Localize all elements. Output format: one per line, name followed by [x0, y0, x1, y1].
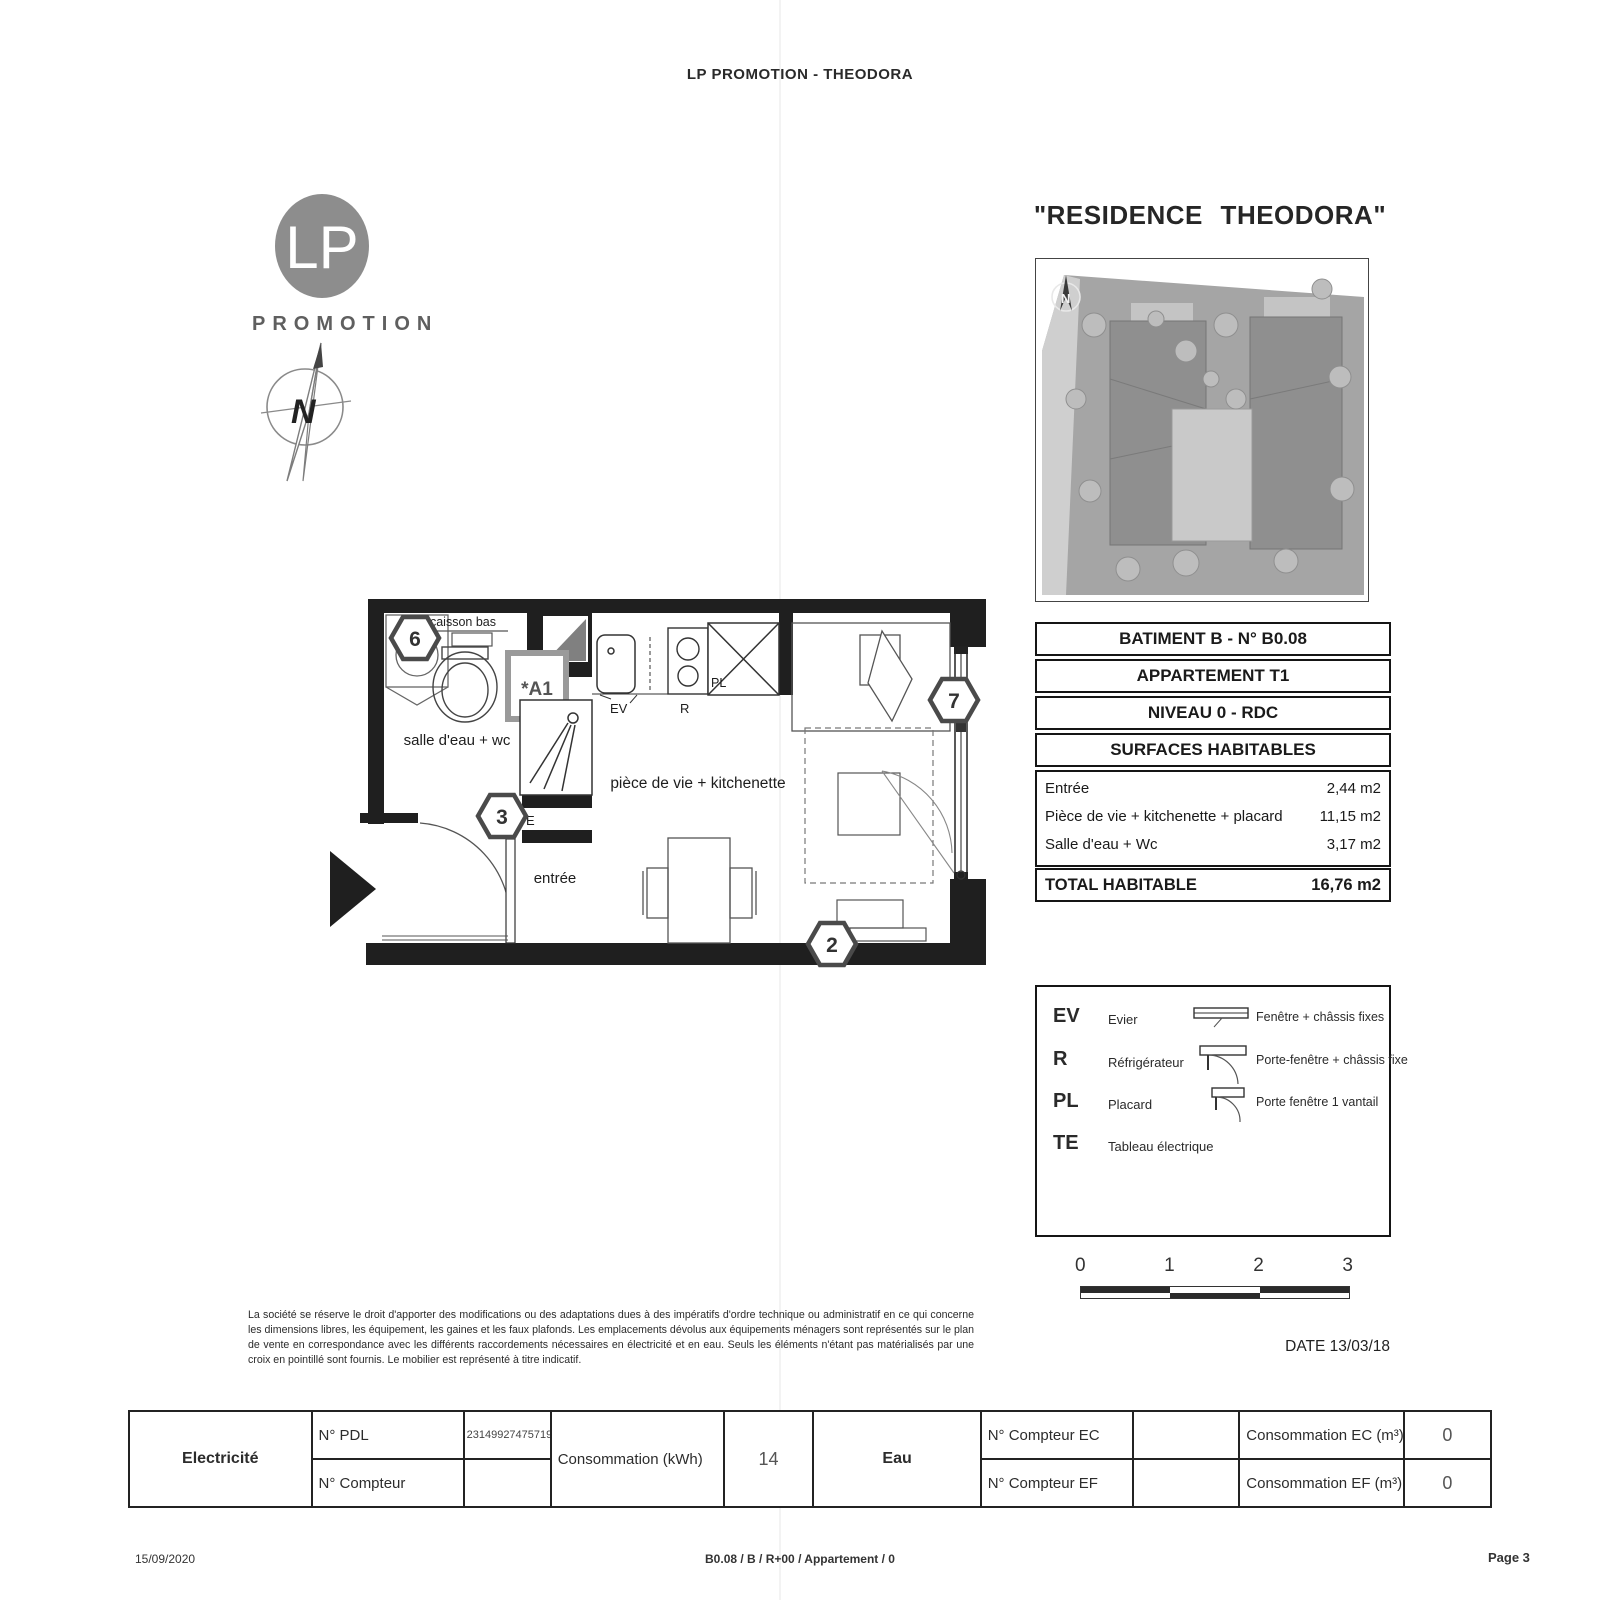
- door-window-symbol-icon: [1198, 1044, 1254, 1086]
- compteur-value: [464, 1459, 551, 1507]
- label-pl: PL: [711, 676, 726, 690]
- conso-ef-value: 0: [1404, 1459, 1491, 1507]
- compteur-label: N° Compteur: [312, 1459, 464, 1507]
- legend-label-porte-1-vantail: Porte fenêtre 1 vantail: [1256, 1095, 1378, 1109]
- surfaces-list: Entrée 2,44 m2 Pièce de vie + kitchenett…: [1035, 770, 1391, 867]
- hexagon-marker-7: 7: [930, 679, 978, 721]
- pdl-label: N° PDL: [312, 1411, 464, 1459]
- site-plan-graphic: N: [1036, 259, 1366, 599]
- total-value: 16,76 m2: [1311, 876, 1381, 895]
- a1-badge-label: *A1: [521, 679, 553, 700]
- legend-label-tableau: Tableau électrique: [1108, 1139, 1214, 1154]
- info-row-batiment: BATIMENT B - N° B0.08: [1035, 622, 1391, 656]
- conso-kwh-value: 14: [724, 1411, 814, 1507]
- room-label-piece-vie: pièce de vie + kitchenette: [610, 775, 785, 792]
- hexagon-marker-6: 6: [391, 617, 439, 659]
- apartment-info-table: BATIMENT B - N° B0.08 APPARTEMENT T1 NIV…: [1035, 622, 1391, 867]
- surface-label: Pièce de vie + kitchenette + placard: [1045, 803, 1283, 831]
- legend-label-fenetre: Fenêtre + châssis fixes: [1256, 1010, 1384, 1024]
- surface-label: Entrée: [1045, 775, 1089, 803]
- scale-tick: 0: [1075, 1255, 1086, 1277]
- scale-tick: 1: [1164, 1255, 1175, 1277]
- residence-title: "RESIDENCE THEODORA": [1020, 200, 1400, 231]
- bed: [792, 623, 950, 731]
- legend-code-ev: EV: [1053, 1005, 1080, 1028]
- surface-value: 3,17 m2: [1327, 831, 1381, 859]
- surface-value: 2,44 m2: [1327, 775, 1381, 803]
- legend-label-placard: Placard: [1108, 1097, 1152, 1112]
- document-header: LP PROMOTION - THEODORA: [0, 66, 1600, 83]
- info-row-niveau: NIVEAU 0 - RDC: [1035, 696, 1391, 730]
- surface-value: 11,15 m2: [1320, 803, 1381, 831]
- dining-table: [643, 838, 756, 943]
- compteur-ef-label: N° Compteur EF: [981, 1459, 1133, 1507]
- meters-table: Electricité N° PDL 23149927475719 Consom…: [128, 1410, 1492, 1508]
- site-plan-image: N: [1035, 258, 1369, 602]
- single-door-symbol-icon: [1208, 1086, 1254, 1126]
- legend-label-refrigerateur: Réfrigérateur: [1108, 1055, 1184, 1070]
- legend-code-te: TE: [1053, 1132, 1079, 1155]
- pdl-value: 23149927475719: [464, 1411, 551, 1459]
- svg-text:6: 6: [409, 628, 421, 651]
- hexagon-marker-3: 3: [478, 795, 526, 837]
- electricite-label: Electricité: [129, 1411, 312, 1507]
- room-label-salle-deau: salle d'eau + wc: [404, 732, 511, 749]
- window-symbol-icon: [1192, 1004, 1252, 1028]
- legend-code-pl: PL: [1053, 1090, 1079, 1113]
- surface-row: Pièce de vie + kitchenette + placard 11,…: [1045, 803, 1381, 831]
- info-row-surfaces: SURFACES HABITABLES: [1035, 733, 1391, 767]
- conso-ec-label: Consommation EC (m³): [1239, 1411, 1404, 1459]
- entrance-arrow-icon: [330, 851, 376, 927]
- total-habitable-row: TOTAL HABITABLE 16,76 m2: [1035, 868, 1391, 902]
- toilet: [433, 647, 497, 722]
- scale-tick: 3: [1342, 1255, 1353, 1277]
- floor-plan: caisson bas *A1: [330, 583, 992, 983]
- north-compass-icon: N: [243, 335, 368, 485]
- caisson-bas-label: caisson bas: [430, 615, 496, 629]
- svg-text:7: 7: [948, 690, 960, 713]
- info-row-appartement: APPARTEMENT T1: [1035, 659, 1391, 693]
- window-door-arc: [882, 771, 954, 873]
- scale-bar-bottom-row: [1081, 1293, 1349, 1299]
- scale-tick: 2: [1253, 1255, 1264, 1277]
- conso-kwh-label: Consommation (kWh): [551, 1411, 724, 1507]
- lp-logo-icon: LP: [252, 192, 392, 304]
- kitchen-sink: [592, 635, 678, 703]
- compass-letter: N: [291, 393, 317, 431]
- cooktop: [668, 628, 708, 694]
- svg-text:2: 2: [826, 934, 838, 957]
- surface-row: Entrée 2,44 m2: [1045, 775, 1381, 803]
- room-label-entree: entrée: [534, 870, 577, 887]
- label-ev: EV: [610, 701, 628, 716]
- svg-text:3: 3: [496, 806, 508, 829]
- conso-ec-value: 0: [1404, 1411, 1491, 1459]
- footer-reference: B0.08 / B / R+00 / Appartement / 0: [0, 1552, 1600, 1566]
- total-label: TOTAL HABITABLE: [1045, 876, 1197, 895]
- surface-label: Salle d'eau + Wc: [1045, 831, 1158, 859]
- compteur-ec-label: N° Compteur EC: [981, 1411, 1133, 1459]
- logo-initials: LP: [285, 214, 358, 281]
- disclaimer-text: La société se réserve le droit d'apporte…: [248, 1308, 974, 1368]
- entry-door: [382, 823, 515, 943]
- logo-name: PROMOTION: [252, 313, 392, 336]
- plan-date: DATE 13/03/18: [1150, 1338, 1390, 1356]
- conso-ef-label: Consommation EF (m³): [1239, 1459, 1404, 1507]
- surface-row: Salle d'eau + Wc 3,17 m2: [1045, 831, 1381, 859]
- legend-code-r: R: [1053, 1048, 1067, 1071]
- compteur-ef-value: [1133, 1459, 1239, 1507]
- shower: [520, 700, 592, 795]
- eau-label: Eau: [813, 1411, 980, 1507]
- legend-label-evier: Evier: [1108, 1012, 1138, 1027]
- scale-bar-ticks: 0 1 2 3: [1075, 1255, 1353, 1277]
- footer-page-number: Page 3: [1488, 1550, 1530, 1565]
- label-r: R: [680, 701, 689, 716]
- dashed-zone: [805, 728, 933, 883]
- legend-label-porte-fenetre: Porte-fenêtre + châssis fixe: [1256, 1053, 1408, 1067]
- siteplan-compass-letter: N: [1061, 291, 1070, 306]
- compteur-ec-value: [1133, 1411, 1239, 1459]
- hexagon-marker-2: 2: [808, 923, 856, 965]
- scale-bar: [1080, 1286, 1350, 1299]
- lp-promotion-logo: LP PROMOTION: [252, 192, 392, 336]
